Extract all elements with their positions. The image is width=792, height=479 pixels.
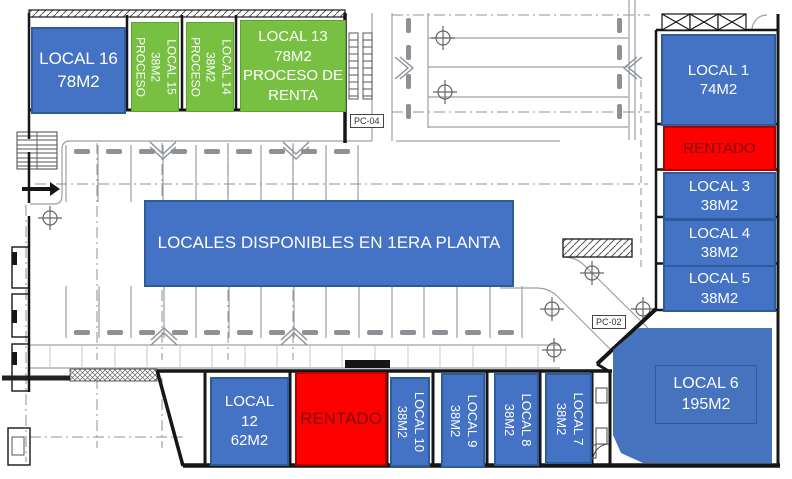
unit-name: LOCAL 16: [39, 48, 118, 70]
unit-label: LOCAL 15 38M2 PROCESO: [132, 37, 179, 97]
unit-name: LOCAL 10: [410, 392, 427, 452]
unit-area: 38M2: [147, 37, 163, 97]
unit-name: LOCAL 7: [569, 392, 586, 445]
unit-name: LOCAL 14: [218, 37, 234, 97]
unit-area: 38M2: [393, 392, 410, 452]
unit-area: 38M2: [689, 289, 750, 309]
unit-local-6: LOCAL 6 195M2: [613, 328, 772, 463]
plan-label-pc02: PC-02: [592, 315, 626, 329]
unit-local-12: LOCAL 12 62M2: [210, 377, 289, 466]
unit-area: 38M2: [552, 392, 569, 445]
unit-name: LOCAL: [225, 392, 274, 412]
unit-status-label: RENTADO: [300, 408, 382, 430]
unit-label: LOCAL 7 38M2: [552, 392, 586, 445]
unit-area: 195M2: [682, 395, 731, 416]
unit-label: LOCAL 1 74M2: [688, 61, 749, 100]
unit-status-label: RENTADO: [683, 139, 755, 159]
unit-name: 12: [225, 412, 274, 432]
unit-local-10: LOCAL 10 38M2: [390, 377, 430, 467]
unit-label: LOCAL 13 78M2 PROCESO DE RENTA: [243, 27, 343, 105]
unit-local-1: LOCAL 1 74M2: [661, 34, 776, 126]
unit-local-14: LOCAL 14 38M2 PROCESO: [186, 22, 234, 112]
unit-rentado-bottom: RENTADO: [295, 372, 387, 466]
unit-note: RENTA: [243, 86, 343, 106]
floor-plan: PC-04 PC-02 LOCAL 16 78M2 LOCAL 15 38M2 …: [0, 0, 792, 479]
unit-name: LOCAL 13: [243, 27, 343, 47]
unit-name: LOCAL 3: [689, 177, 750, 197]
availability-banner: LOCALES DISPONIBLES EN 1ERA PLANTA: [144, 200, 514, 287]
unit-area: 38M2: [202, 37, 218, 97]
unit-area: 74M2: [688, 80, 749, 100]
unit-label: LOCAL 5 38M2: [689, 269, 750, 308]
banner-text: LOCALES DISPONIBLES EN 1ERA PLANTA: [158, 232, 501, 254]
unit-area: 38M2: [500, 393, 517, 446]
unit-label: LOCAL 9 38M2: [446, 394, 480, 447]
unit-local-5: LOCAL 5 38M2: [663, 265, 776, 312]
unit-local-13: LOCAL 13 78M2 PROCESO DE RENTA: [240, 20, 346, 112]
unit-note: PROCESO DE: [243, 66, 343, 86]
unit-label: LOCAL 8 38M2: [500, 393, 534, 446]
unit-local-3: LOCAL 3 38M2: [663, 172, 776, 220]
unit-local-8: LOCAL 8 38M2: [494, 373, 539, 466]
unit-area: 78M2: [243, 47, 343, 67]
unit-local-15: LOCAL 15 38M2 PROCESO: [131, 22, 179, 112]
unit-name: LOCAL 15: [163, 37, 179, 97]
unit-name: LOCAL 5: [689, 269, 750, 289]
unit-area: 62M2: [225, 431, 274, 451]
unit-local-7: LOCAL 7 38M2: [545, 373, 592, 464]
unit-name: LOCAL 1: [688, 61, 749, 81]
unit-label: LOCAL 4 38M2: [689, 224, 750, 263]
unit-name: LOCAL 6: [673, 374, 738, 395]
unit-rentado-top: RENTADO: [663, 126, 776, 171]
unit-area: 38M2: [689, 196, 750, 216]
unit-area: 78M2: [39, 71, 118, 93]
unit-label: LOCAL 6 195M2: [655, 365, 757, 424]
unit-area: 38M2: [446, 394, 463, 447]
unit-local-4: LOCAL 4 38M2: [663, 219, 776, 267]
unit-name: LOCAL 9: [463, 394, 480, 447]
unit-note: PROCESO: [132, 37, 148, 97]
unit-area: 38M2: [689, 243, 750, 263]
unit-label: LOCAL 10 38M2: [393, 392, 427, 452]
plan-label-pc04: PC-04: [350, 114, 384, 128]
unit-label: LOCAL 12 62M2: [225, 392, 274, 451]
unit-name: LOCAL 4: [689, 224, 750, 244]
unit-note: PROCESO: [187, 37, 203, 97]
unit-label: LOCAL 3 38M2: [689, 177, 750, 216]
unit-local-16: LOCAL 16 78M2: [31, 27, 126, 114]
unit-local-9: LOCAL 9 38M2: [441, 373, 485, 468]
unit-label: LOCAL 14 38M2 PROCESO: [187, 37, 234, 97]
unit-name: LOCAL 8: [517, 393, 534, 446]
unit-label: LOCAL 16 78M2: [39, 48, 118, 92]
